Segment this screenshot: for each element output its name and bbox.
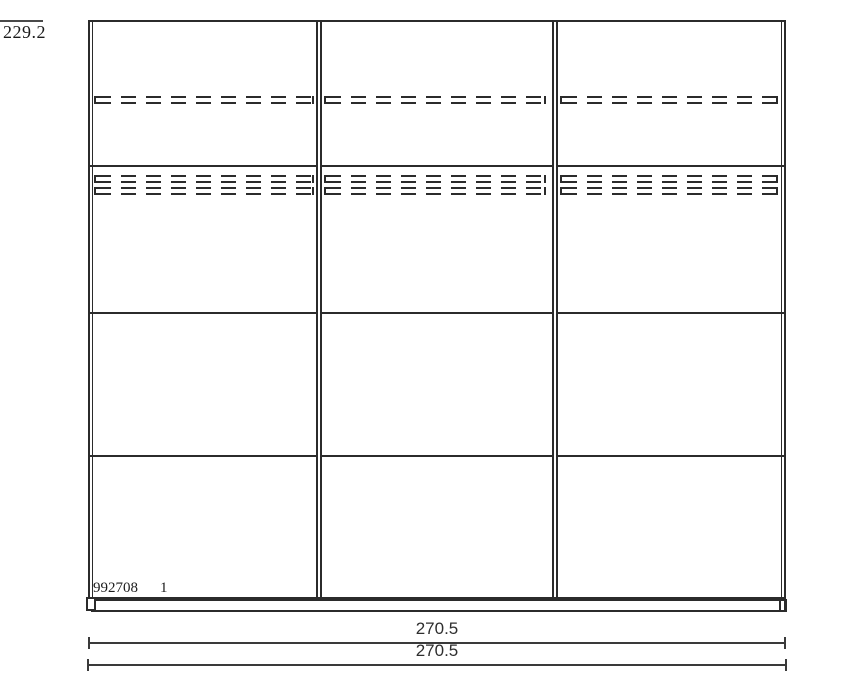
sheet-number: 1 xyxy=(160,580,168,596)
hidden-shelf-line xyxy=(324,96,546,104)
height-dimension-label: 229.2 xyxy=(3,23,46,41)
hidden-shelf-line xyxy=(94,175,314,183)
plinth-left-foot xyxy=(86,597,96,611)
wardrobe-outline: 9927081 xyxy=(88,20,786,599)
hidden-shelf-line xyxy=(94,96,314,104)
sliding-door-divider xyxy=(552,22,558,597)
width-dimension-line-bottom xyxy=(87,659,787,671)
sliding-door-divider xyxy=(316,22,322,597)
dimension-tick xyxy=(785,659,787,671)
hidden-shelf-line xyxy=(324,175,546,183)
hidden-shelf-line xyxy=(324,187,546,195)
wardrobe-technical-drawing: 229.2 9927081 270.5 xyxy=(0,0,865,673)
hidden-shelf-line xyxy=(560,175,778,183)
hidden-shelf-line xyxy=(94,187,314,195)
door-panel-joint-line xyxy=(90,165,784,167)
dimension-line xyxy=(87,664,787,666)
plinth-base xyxy=(91,599,786,612)
right-side-panel-line xyxy=(781,22,782,597)
width-dimension-label-top: 270.5 xyxy=(88,620,786,638)
drawing-number-value: 992708 xyxy=(93,580,138,596)
plinth-right-foot xyxy=(779,599,787,612)
left-side-panel-line xyxy=(92,22,93,597)
hidden-shelf-line xyxy=(560,187,778,195)
hidden-shelf-line xyxy=(560,96,778,104)
width-dimension-label-bottom: 270.5 xyxy=(88,642,786,660)
door-panel-joint-line xyxy=(90,455,784,457)
door-panel-joint-line xyxy=(90,312,784,314)
drawing-number: 9927081 xyxy=(93,580,168,596)
